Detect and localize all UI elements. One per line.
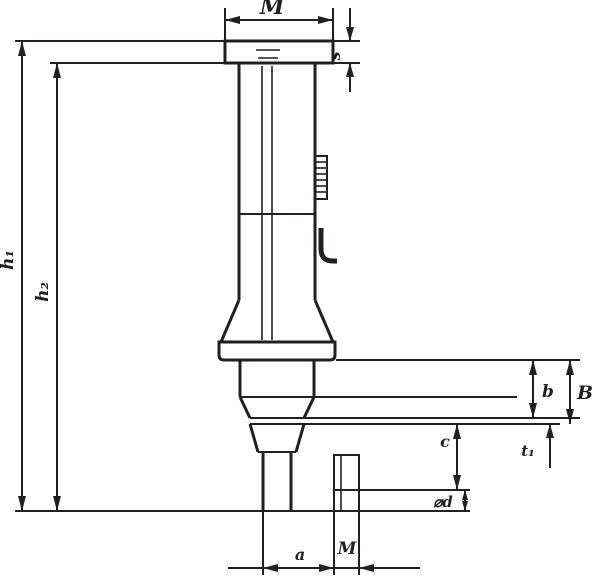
dim-step-outer: B <box>566 360 593 424</box>
dim-bottom: a M <box>228 539 420 572</box>
technical-drawing: M s h₁ h₂ b B t₁ <box>0 0 600 584</box>
part-outline <box>219 41 359 511</box>
dim-label-tip-offset: a <box>295 545 305 564</box>
dim-tip-diameter: ⌀d <box>433 490 468 511</box>
dim-height-body: h₂ <box>33 63 61 511</box>
collar-profile <box>219 342 335 360</box>
dim-label-height-overall: h₁ <box>0 250 18 270</box>
dim-step-inner: b <box>529 360 554 418</box>
dim-height-overall: h₁ <box>0 41 26 511</box>
knurled-button <box>315 156 327 199</box>
dim-label-cone-length: c <box>440 432 450 451</box>
dim-label-step-inner: b <box>542 382 554 402</box>
dim-label-flange-thickness: t₁ <box>521 442 535 460</box>
dim-label-height-body: h₂ <box>33 282 53 302</box>
dim-label-step-outer: B <box>576 382 593 404</box>
dim-label-top-width: M <box>259 0 285 20</box>
extension-lines <box>15 8 580 575</box>
clip-hook <box>321 228 337 261</box>
dim-label-thread-size: M <box>337 539 358 559</box>
dim-cone-length: c <box>440 424 461 490</box>
dim-label-tip-diameter: ⌀d <box>433 493 453 511</box>
drawing-canvas: M s h₁ h₂ b B t₁ <box>0 0 600 584</box>
cap-profile <box>225 41 333 63</box>
dim-flange-thickness: t₁ <box>521 424 554 468</box>
dim-top-width: M <box>225 0 333 24</box>
dim-label-cap-thickness: s <box>325 51 344 61</box>
stud-section <box>334 455 359 511</box>
